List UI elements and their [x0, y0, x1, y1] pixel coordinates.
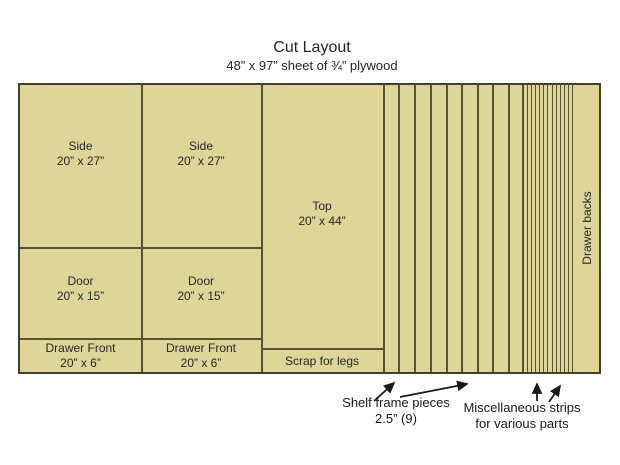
cut-line-vertical [568, 85, 569, 372]
panel-door-1: Door 20” x 15” [20, 274, 141, 304]
cut-line-vertical [531, 85, 532, 372]
panel-door-2: Door 20” x 15” [141, 274, 261, 304]
panel-dims: 20” x 44” [261, 214, 383, 229]
panel-name: Top [261, 199, 383, 214]
cut-line-vertical [141, 85, 143, 372]
cut-line-vertical [430, 85, 432, 372]
panel-dims: 20” x 27” [20, 154, 141, 169]
cut-line-vertical [535, 85, 536, 372]
panel-side-2: Side 20” x 27” [141, 139, 261, 169]
cut-line-vertical [383, 85, 385, 372]
cut-line-horizontal [20, 338, 262, 340]
cut-line-vertical [477, 85, 479, 372]
cut-line-vertical [552, 85, 553, 372]
cut-line-vertical [539, 85, 540, 372]
cut-line-vertical [522, 85, 524, 372]
panel-drawer-front-2: Drawer Front 20” x 6” [141, 341, 261, 370]
misc-strips-note: Miscellaneous strips for various parts [442, 400, 602, 432]
panel-name: Door [141, 274, 261, 289]
cut-line-vertical [572, 85, 573, 372]
cut-line-vertical [560, 85, 561, 372]
panel-name: Side [20, 139, 141, 154]
cut-line-vertical [564, 85, 565, 372]
cut-layout-diagram: Cut Layout 48” x 97” sheet of ¾” plywood [0, 0, 620, 465]
panel-drawer-backs: Drawer backs [577, 148, 597, 308]
panel-dims: 20” x 6” [141, 356, 261, 371]
panel-name: Drawer Front [20, 341, 141, 356]
page-subtitle: 48” x 97” sheet of ¾” plywood [10, 58, 614, 74]
cut-line-vertical [527, 85, 528, 372]
cut-line-vertical [492, 85, 494, 372]
cut-line-vertical [508, 85, 510, 372]
cut-line-vertical [446, 85, 448, 372]
panel-drawer-front-1: Drawer Front 20” x 6” [20, 341, 141, 370]
page-title: Cut Layout [10, 38, 614, 57]
cut-line-vertical [547, 85, 548, 372]
panel-name: Scrap for legs [261, 354, 383, 369]
cut-line-vertical [461, 85, 463, 372]
panel-dims: 20” x 6” [20, 356, 141, 371]
misc-strips-note-line2: for various parts [442, 416, 602, 432]
panel-dims: 20” x 15” [141, 289, 261, 304]
cut-line-horizontal [261, 348, 384, 350]
panel-side-1: Side 20” x 27” [20, 139, 141, 169]
panel-name: Drawer Front [141, 341, 261, 356]
cut-line-vertical [556, 85, 557, 372]
cut-line-horizontal [20, 247, 262, 249]
cut-line-vertical [414, 85, 416, 372]
cut-line-vertical [543, 85, 544, 372]
misc-strips-note-line1: Miscellaneous strips [442, 400, 602, 416]
panel-name: Door [20, 274, 141, 289]
panel-name: Side [141, 139, 261, 154]
panel-scrap: Scrap for legs [261, 354, 383, 369]
cut-line-vertical [398, 85, 400, 372]
panel-dims: 20” x 15” [20, 289, 141, 304]
panel-dims: 20” x 27” [141, 154, 261, 169]
panel-top: Top 20” x 44” [261, 199, 383, 229]
plywood-sheet: Side 20” x 27” Side 20” x 27” Top 20” x … [18, 83, 601, 374]
